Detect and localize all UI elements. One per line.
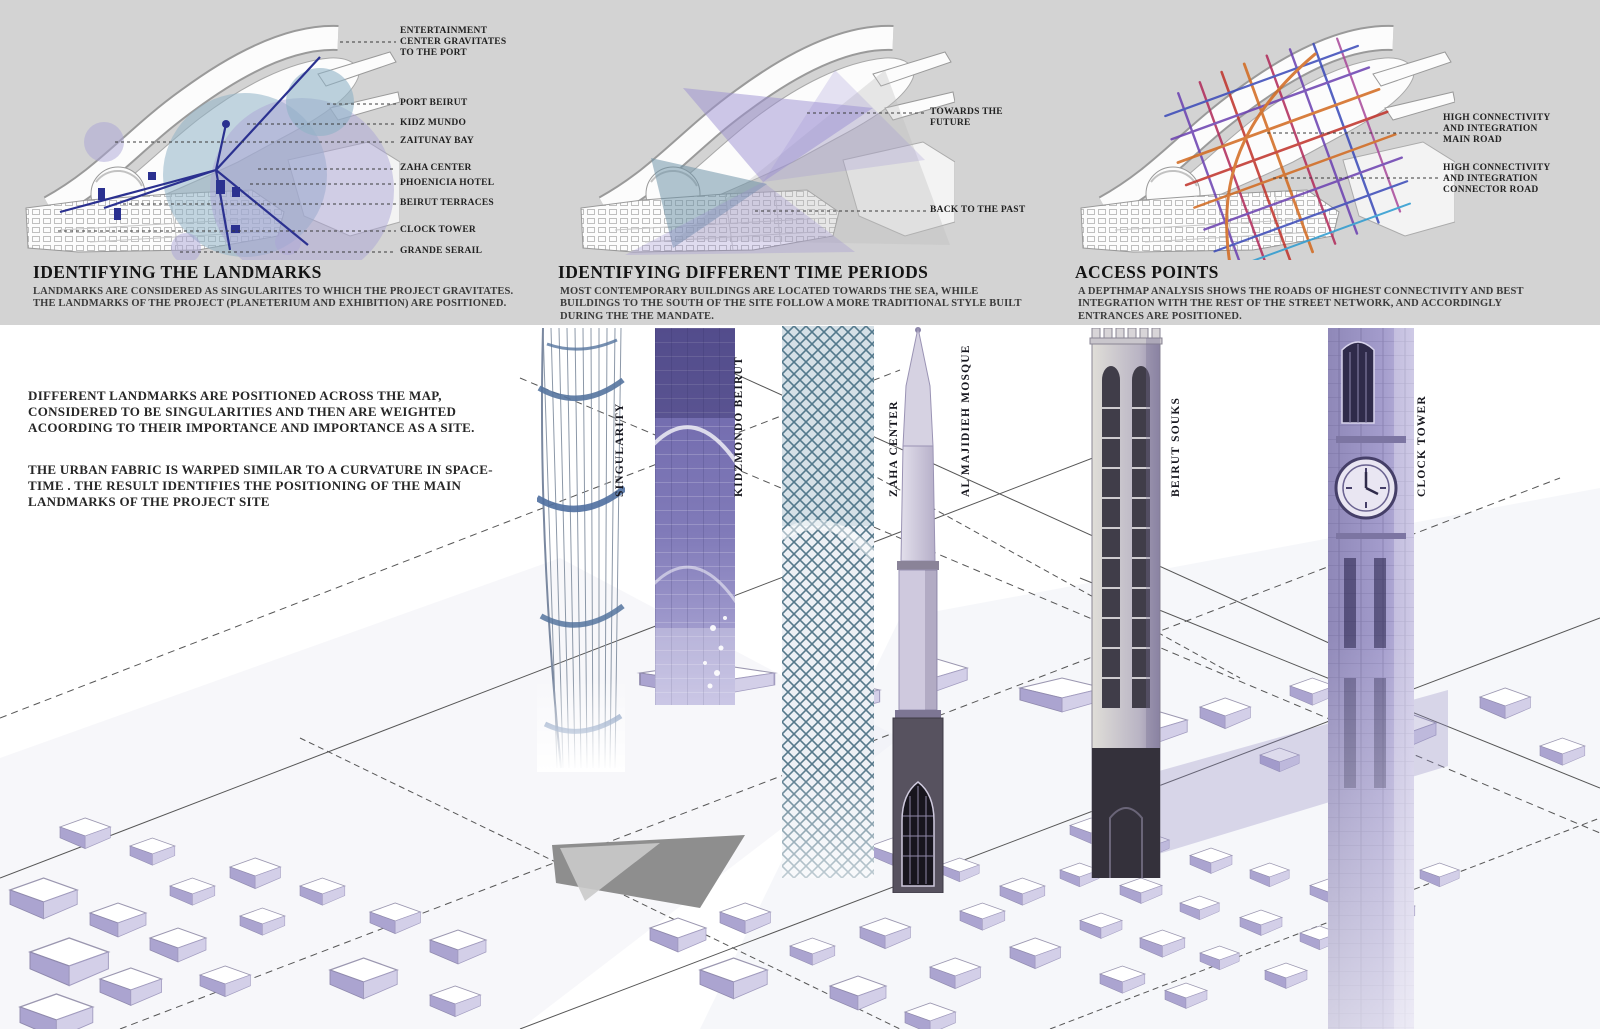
label-grande-serail: GRANDE SERAIL — [400, 246, 482, 257]
tower-label-singularity: SINGULARITY — [614, 413, 629, 497]
tower-beirut-souks — [1088, 328, 1164, 878]
label-connector-road: HIGH CONNECTIVITY AND INTEGRATION CONNEC… — [1443, 163, 1561, 197]
access-points-heading: ACCESS POINTS — [1075, 262, 1219, 283]
presentation-board: ENTERTAINMENT CENTER GRAVITATES TO THE P… — [0, 0, 1600, 1029]
time-periods-heading: IDENTIFYING DIFFERENT TIME PERIODS — [558, 262, 928, 283]
landmarks-heading: IDENTIFYING THE LANDMARKS — [33, 262, 322, 283]
label-towards-future: TOWARDS THE FUTURE — [930, 107, 1010, 129]
label-main-road: HIGH CONNECTIVITY AND INTEGRATION MAIN R… — [1443, 113, 1561, 147]
tower-kidzmondo — [655, 328, 735, 705]
tower-clock — [1328, 328, 1414, 1029]
label-phoenicia-hotel: PHOENICIA HOTEL — [400, 178, 494, 189]
label-beirut-terraces: BEIRUT TERRACES — [400, 198, 494, 209]
tower-label-kidzmondo: KIDZMONDO BEIRUT — [733, 377, 748, 497]
label-back-to-past: BACK TO THE PAST — [930, 205, 1025, 216]
label-zaitunay-bay: ZAITUNAY BAY — [400, 136, 474, 147]
tower-label-mosque: AL MAJIDIEH MOSQUE — [960, 365, 975, 497]
label-port-beirut: PORT BEIRUT — [400, 98, 467, 109]
landmarks-body: LANDMARKS ARE CONSIDERED AS SINGULARITES… — [33, 286, 525, 311]
tower-label-beirut-souks: BEIRUT SOUKS — [1170, 405, 1185, 497]
label-kidz-mundo: KIDZ MUNDO — [400, 118, 466, 129]
label-clock-tower-map: CLOCK TOWER — [400, 225, 476, 236]
model-paragraph-1: DIFFERENT LANDMARKS ARE POSITIONED ACROS… — [28, 388, 500, 436]
tower-zaha-center — [782, 326, 874, 878]
tower-label-clock-tower: CLOCK TOWER — [1416, 411, 1431, 497]
label-entertainment-center: ENTERTAINMENT CENTER GRAVITATES TO THE P… — [400, 26, 516, 60]
tower-label-zaha-center: ZAHA CENTER — [888, 413, 903, 497]
model-paragraph-2: THE URBAN FABRIC IS WARPED SIMILAR TO A … — [28, 462, 500, 510]
tower-singularity — [537, 328, 625, 772]
label-zaha-center: ZAHA CENTER — [400, 163, 472, 174]
